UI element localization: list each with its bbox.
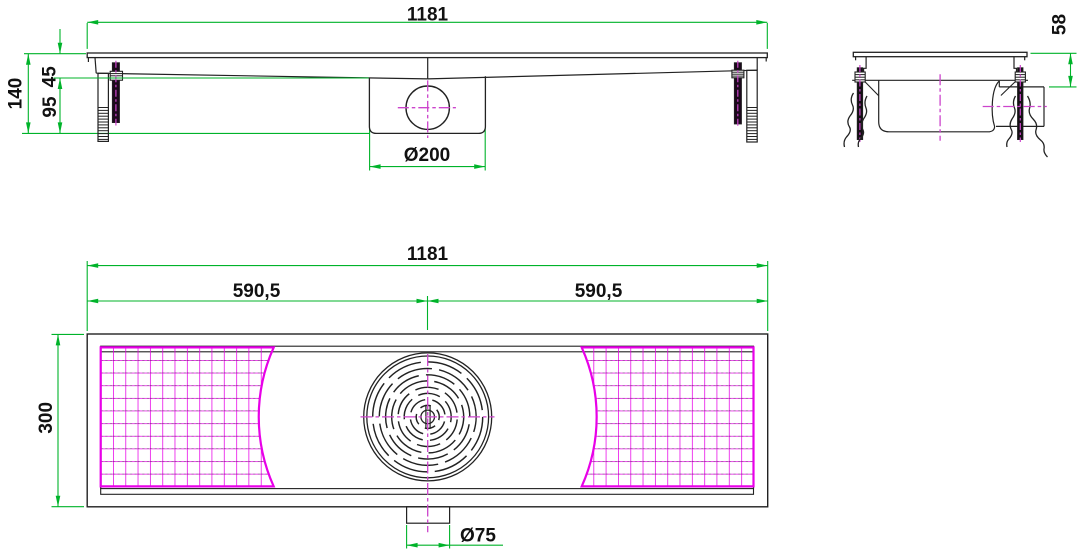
- svg-text:58: 58: [1050, 14, 1071, 35]
- svg-text:1181: 1181: [407, 244, 449, 265]
- svg-text:Ø75: Ø75: [460, 526, 496, 547]
- svg-text:95: 95: [40, 96, 61, 118]
- svg-text:590,5: 590,5: [233, 281, 281, 302]
- svg-text:140: 140: [6, 78, 27, 110]
- svg-text:590,5: 590,5: [575, 281, 623, 302]
- svg-text:300: 300: [36, 402, 57, 434]
- svg-text:45: 45: [40, 66, 61, 88]
- svg-text:Ø200: Ø200: [404, 145, 450, 166]
- svg-text:1181: 1181: [407, 4, 449, 25]
